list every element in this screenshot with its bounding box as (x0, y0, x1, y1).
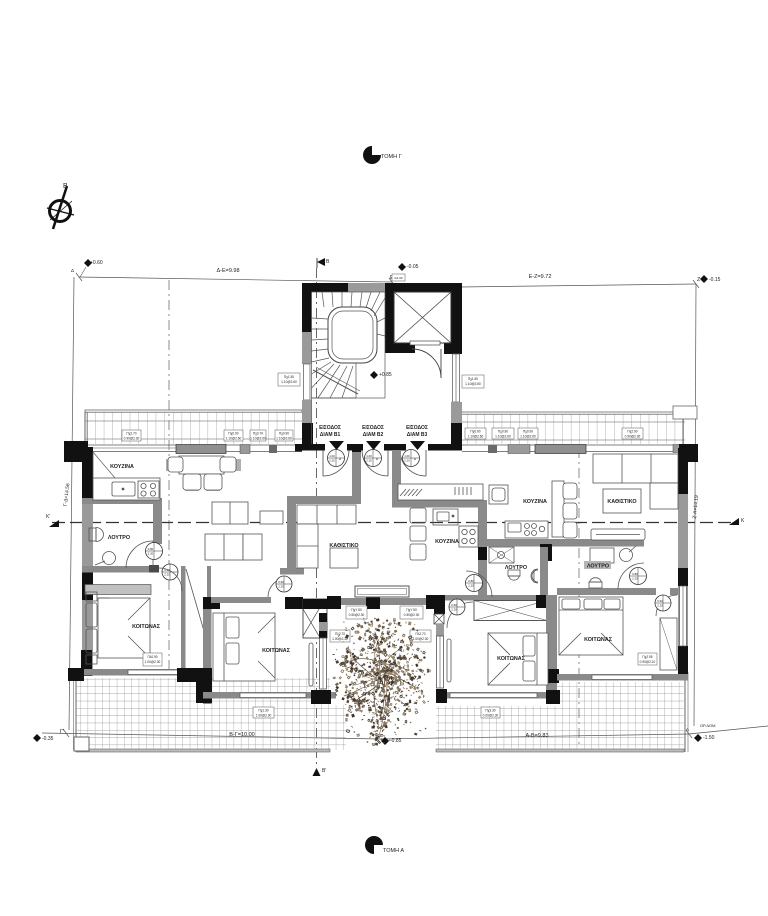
svg-text:2.20: 2.20 (329, 459, 335, 463)
svg-text:Θ1.00: Θ1.00 (394, 276, 403, 280)
svg-text:Πλ2.70: Πλ2.70 (335, 632, 345, 636)
svg-text:ΤΟΜΗ Α: ΤΟΜΗ Α (383, 848, 404, 854)
svg-text:ΚΟΥΖΙΝΑ: ΚΟΥΖΙΝΑ (523, 499, 547, 505)
svg-text:-0.05: -0.05 (407, 264, 419, 270)
svg-text:1.10@2.60: 1.10@2.60 (276, 437, 292, 441)
svg-text:1.00: 1.00 (404, 454, 410, 458)
svg-text:Πχ0.70: Πχ0.70 (253, 432, 263, 436)
svg-text:Πχ0.90: Πχ0.90 (279, 432, 289, 436)
svg-text:1.10@2.60: 1.10@2.60 (281, 380, 297, 384)
svg-text:Πχ1.50: Πχ1.50 (284, 375, 294, 379)
svg-text:ΔΙΑΜ Β3: ΔΙΑΜ Β3 (407, 432, 428, 438)
svg-text:ΛΟΥΤΡΟ: ΛΟΥΤΡΟ (108, 535, 130, 541)
svg-text:Β: Β (380, 733, 383, 738)
svg-text:Κ': Κ' (46, 514, 50, 520)
svg-text:ΚΟΥΖΙΝΑ: ΚΟΥΖΙΝΑ (110, 464, 134, 470)
svg-text:ΠχΥ 50: ΠχΥ 50 (351, 608, 362, 612)
svg-text:+0.60: +0.60 (90, 260, 103, 266)
svg-text:Πχ2.70: Πχ2.70 (126, 432, 136, 436)
svg-text:0.80: 0.80 (148, 547, 154, 551)
svg-text:1.10@2.60: 1.10@2.60 (250, 437, 266, 441)
svg-text:Πχ3.30: Πχ3.30 (485, 709, 495, 713)
svg-text:ΕΙΣΟΔΟΣ: ΕΙΣΟΔΟΣ (319, 425, 341, 431)
svg-text:0.90@2.30: 0.90@2.30 (124, 437, 140, 441)
svg-text:Β: Β (63, 183, 68, 190)
svg-text:ΛΟΥΤΡΟ: ΛΟΥΤΡΟ (587, 564, 609, 570)
svg-text:Πχ0.90: Πχ0.90 (470, 430, 480, 434)
svg-text:2.20: 2.20 (278, 585, 284, 589)
svg-text:0.90: 0.90 (278, 580, 284, 584)
svg-text:Ε-Ζ=9.72: Ε-Ζ=9.72 (529, 274, 552, 280)
svg-text:0.50@2.30: 0.50@2.30 (349, 613, 365, 617)
svg-text:2.20: 2.20 (366, 459, 372, 463)
svg-text:Πχ0.90: Πχ0.90 (523, 430, 533, 434)
svg-text:ΚΟΥΖΙΝΑ: ΚΟΥΖΙΝΑ (435, 539, 459, 545)
svg-text:1.00: 1.00 (366, 454, 372, 458)
svg-text:2.20: 2.20 (632, 577, 638, 581)
svg-text:Πλ2.70: Πλ2.70 (415, 632, 425, 636)
svg-text:-0.15: -0.15 (709, 277, 721, 283)
svg-text:ΟΡ.ΔΟΜ: ΟΡ.ΔΟΜ (700, 723, 715, 728)
svg-text:1.00: 1.00 (329, 454, 335, 458)
svg-text:0.80: 0.80 (632, 572, 638, 576)
svg-text:2.20: 2.20 (468, 584, 474, 588)
svg-text:1.10@2.60: 1.10@2.60 (465, 382, 481, 386)
svg-text:Πχ0.90: Πχ0.90 (498, 430, 508, 434)
svg-text:ΚΑΘΙΣΤΙΚΟ: ΚΑΘΙΣΤΙΚΟ (607, 499, 636, 505)
svg-text:-0.85: -0.85 (390, 738, 402, 744)
svg-text:2.20: 2.20 (164, 573, 170, 577)
svg-text:-0.35: -0.35 (42, 736, 54, 742)
svg-text:ΚΑΘΙΣΤΙΚΟ: ΚΑΘΙΣΤΙΚΟ (329, 543, 358, 549)
svg-text:Γ': Γ' (60, 729, 64, 735)
svg-text:0.00@2.30: 0.00@2.30 (483, 714, 499, 718)
svg-text:ΚΟΙΤΩΝΑΣ: ΚΟΙΤΩΝΑΣ (132, 624, 161, 630)
svg-text:1.10@2.60: 1.10@2.60 (468, 435, 484, 439)
svg-text:Πχ2.95: Πχ2.95 (642, 655, 652, 659)
svg-text:Πχ1.30: Πχ1.30 (258, 709, 268, 713)
svg-text:Πχ1.50: Πχ1.50 (468, 377, 478, 381)
svg-text:2.20: 2.20 (404, 459, 410, 463)
svg-text:+0.85: +0.85 (379, 372, 392, 378)
svg-text:2.20: 2.20 (657, 604, 663, 608)
svg-text:0.90@2.30: 0.90@2.30 (625, 435, 641, 439)
svg-text:ΚΟΙΤΩΝΑΣ: ΚΟΙΤΩΝΑΣ (497, 656, 526, 662)
svg-text:0.90: 0.90 (451, 603, 457, 607)
svg-text:2.20: 2.20 (451, 608, 457, 612)
svg-text:Α: Α (686, 727, 689, 732)
svg-text:ΔΙΑΜ Β1: ΔΙΑΜ Β1 (320, 432, 341, 438)
svg-text:Πχ0.90: Πχ0.90 (228, 432, 238, 436)
svg-text:0.90: 0.90 (657, 599, 663, 603)
svg-text:ΛΟΥΤΡΟ: ΛΟΥΤΡΟ (505, 565, 527, 571)
svg-text:Πλ0.90: Πλ0.90 (147, 655, 157, 659)
svg-text:Πχ2.90: Πχ2.90 (627, 430, 637, 434)
svg-text:ΚΟΙΤΩΝΑΣ: ΚΟΙΤΩΝΑΣ (584, 637, 613, 643)
svg-text:ΕΙΣΟΔΟΣ: ΕΙΣΟΔΟΣ (362, 425, 384, 431)
svg-text:ΚΟΙΤΩΝΑΣ: ΚΟΙΤΩΝΑΣ (262, 648, 291, 654)
svg-text:0.80: 0.80 (468, 579, 474, 583)
svg-text:ΕΙΣΟΔΟΣ: ΕΙΣΟΔΟΣ (406, 425, 428, 431)
svg-text:ΔΙΑΜ Β2: ΔΙΑΜ Β2 (363, 432, 384, 438)
svg-text:0.50@2.30: 0.50@2.30 (404, 613, 420, 617)
svg-text:2.20: 2.20 (148, 552, 154, 556)
svg-text:0.90@2.10: 0.90@2.10 (640, 660, 656, 664)
svg-text:Δ-Ε=9.98: Δ-Ε=9.98 (216, 268, 239, 274)
svg-text:ΠχΥ 50: ΠχΥ 50 (406, 608, 417, 612)
svg-text:Β': Β' (322, 768, 326, 774)
svg-text:1.10@2.60: 1.10@2.60 (495, 435, 511, 439)
svg-text:1.10@2.60: 1.10@2.60 (226, 437, 242, 441)
svg-text:1.00@2.30: 1.00@2.30 (256, 714, 272, 718)
svg-text:1.00@2.30: 1.00@2.30 (145, 660, 161, 664)
svg-text:-1.50: -1.50 (703, 735, 715, 741)
svg-text:ΤΟΜΗ Γ: ΤΟΜΗ Γ (381, 154, 402, 160)
svg-text:1.00@2.30: 1.00@2.30 (413, 637, 429, 641)
svg-text:Δ: Δ (71, 268, 74, 273)
svg-text:1.10@2.60: 1.10@2.60 (520, 435, 536, 439)
